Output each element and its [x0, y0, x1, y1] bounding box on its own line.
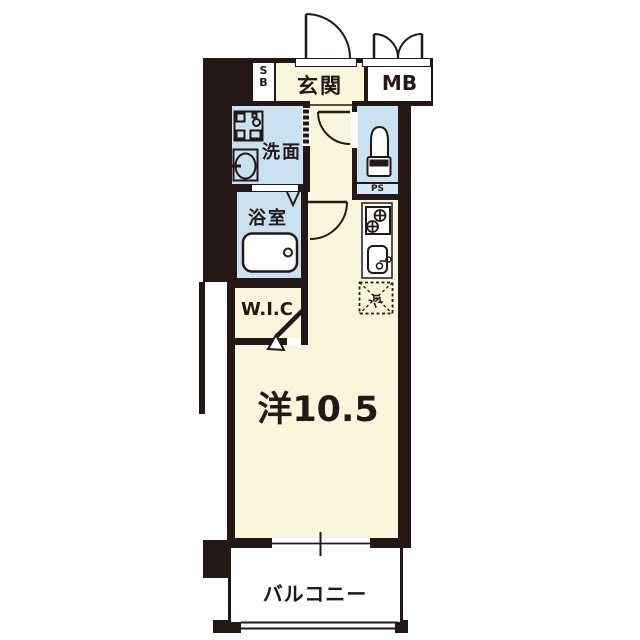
kitchen-sink-icon — [368, 246, 391, 273]
vanity-sink-icon — [231, 150, 258, 181]
entrance-door-arc — [306, 14, 350, 58]
floor-plan: S B 玄関 MB 洗面 浴室 PS W.I.C 洋10.5 バルコニー 冷 — [0, 0, 640, 640]
room-door-arc — [310, 202, 347, 239]
balcony-label: バルコニー — [245, 578, 385, 607]
entrance-door-icon — [306, 14, 350, 58]
room-door-icon — [308, 202, 347, 239]
bathtub-icon — [243, 234, 297, 272]
toilet-icon — [368, 127, 391, 176]
balcony-railing-icon — [241, 623, 398, 629]
washroom-label: 洗面 — [258, 138, 306, 164]
hall-door-arc — [318, 112, 350, 144]
pipe-space-label: PS — [357, 184, 398, 194]
meter-box-doors-icon — [374, 34, 422, 58]
meter-box-label: MB — [368, 71, 431, 95]
shoes-box-label-b: B — [253, 77, 274, 89]
gas-stove-icon — [366, 207, 390, 234]
entrance-label: 玄関 — [276, 70, 364, 100]
wic-label: W.I.C — [235, 299, 299, 320]
washing-machine-pan-icon — [235, 112, 263, 141]
hall-door-icon — [318, 112, 350, 144]
wic-door-tip — [268, 335, 284, 350]
shoes-box-label: S B — [253, 65, 274, 89]
mb-right-arc — [398, 34, 422, 58]
main-room-label: 洋10.5 — [240, 381, 396, 432]
bathroom-label: 浴室 — [239, 204, 297, 230]
mb-left-arc — [374, 34, 398, 58]
sliding-window-icon — [272, 532, 370, 556]
